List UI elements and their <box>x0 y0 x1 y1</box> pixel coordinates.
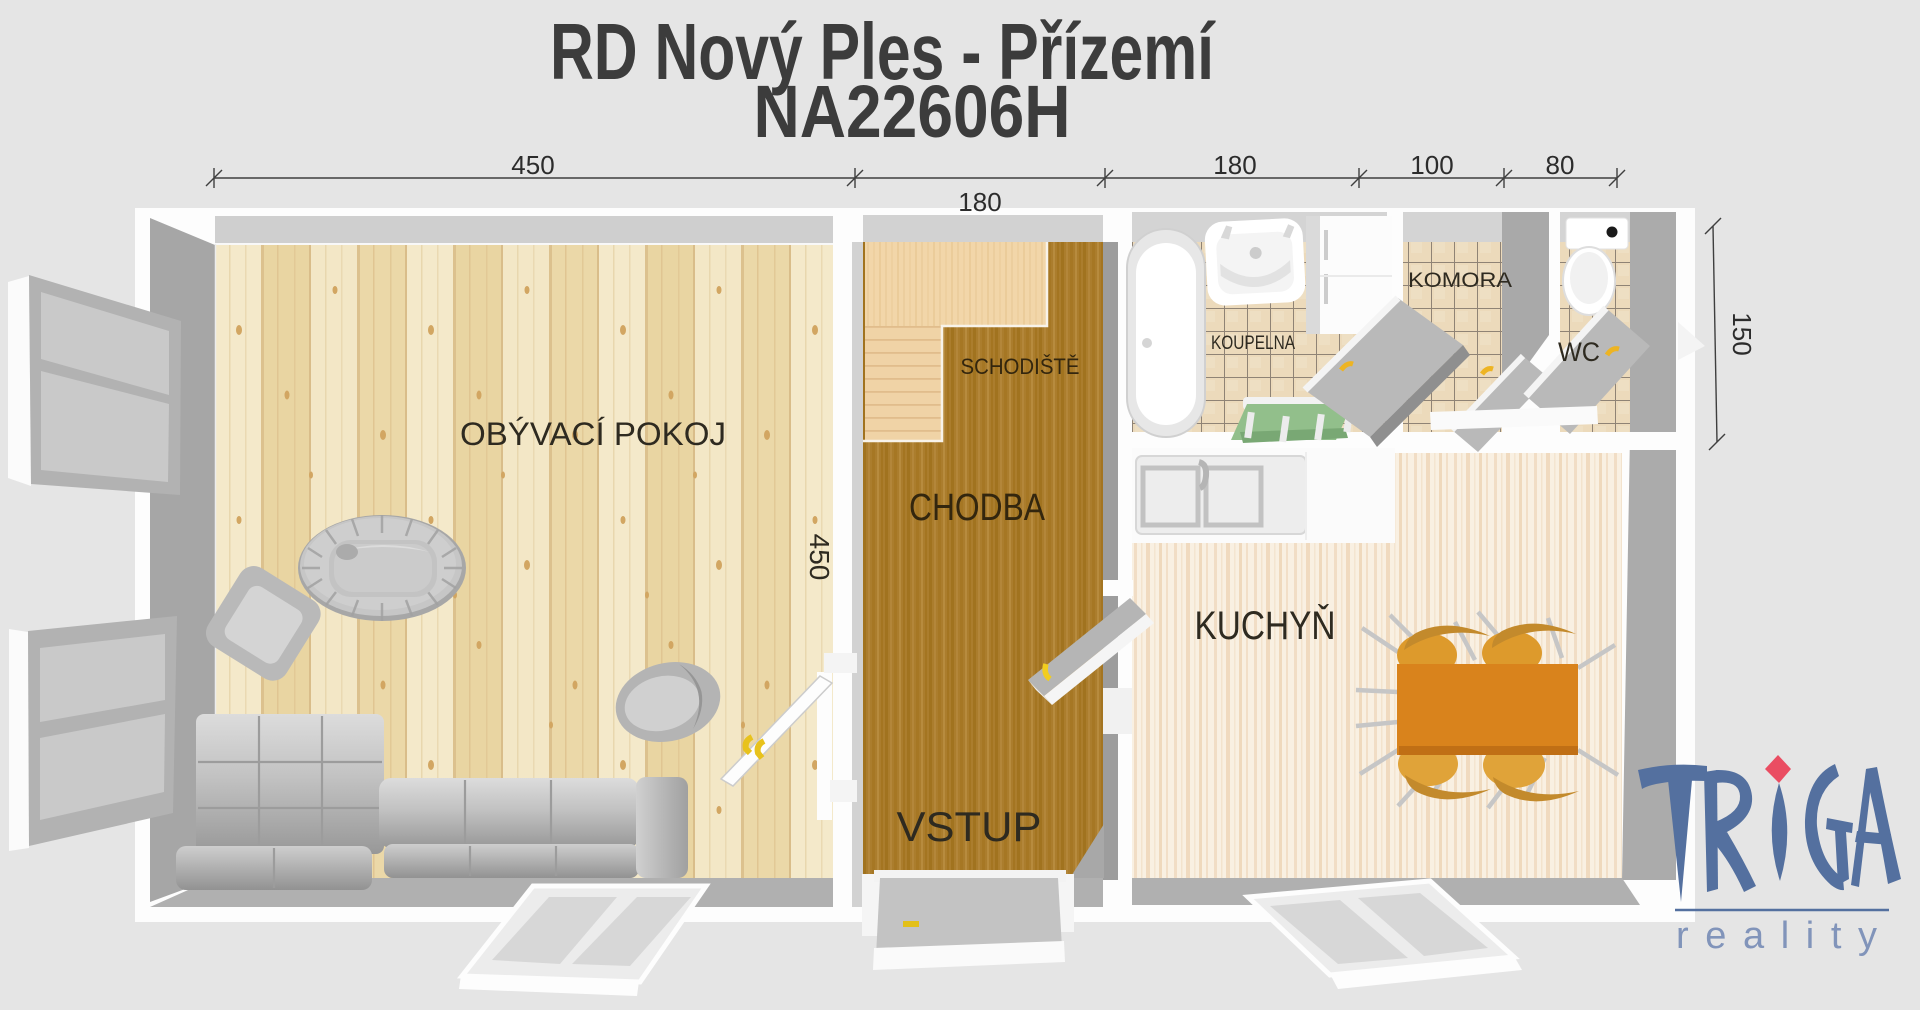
svg-text:OBÝVACÍ POKOJ: OBÝVACÍ POKOJ <box>460 416 726 452</box>
svg-text:KUCHYŇ: KUCHYŇ <box>1195 603 1336 648</box>
svg-text:VSTUP: VSTUP <box>897 803 1042 850</box>
svg-text:reality: reality <box>1676 915 1889 957</box>
svg-text:KOMORA: KOMORA <box>1408 269 1512 292</box>
svg-text:450: 450 <box>804 534 835 581</box>
svg-text:180: 180 <box>958 187 1001 217</box>
svg-text:KOUPELNA: KOUPELNA <box>1211 333 1295 354</box>
svg-text:150: 150 <box>1727 312 1757 355</box>
svg-text:SCHODIŠTĚ: SCHODIŠTĚ <box>961 354 1080 379</box>
svg-text:NA22606H: NA22606H <box>754 70 1071 153</box>
svg-text:100: 100 <box>1410 150 1453 180</box>
svg-text:80: 80 <box>1546 150 1575 180</box>
svg-text:WC: WC <box>1558 337 1600 367</box>
svg-text:CHODBA: CHODBA <box>909 487 1046 529</box>
svg-text:180: 180 <box>1213 150 1256 180</box>
svg-text:450: 450 <box>511 150 554 180</box>
